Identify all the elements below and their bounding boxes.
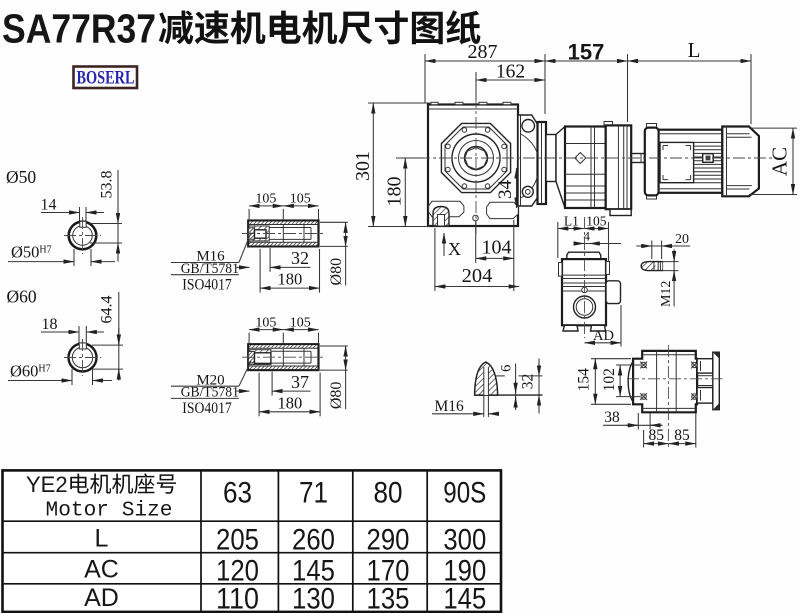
svg-text:L1: L1 (564, 214, 579, 229)
svg-text:ISO4017: ISO4017 (182, 400, 232, 417)
svg-text:SA77R37: SA77R37 (2, 5, 156, 51)
svg-text:Motor Size: Motor Size (46, 500, 173, 523)
svg-text:AD: AD (84, 584, 119, 612)
svg-text:64.4: 64.4 (99, 296, 116, 324)
svg-text:300: 300 (443, 524, 486, 557)
svg-text:180: 180 (384, 177, 406, 207)
svg-text:L: L (688, 38, 701, 62)
svg-text:162: 162 (496, 62, 525, 83)
svg-text:AC: AC (768, 147, 792, 176)
svg-text:32: 32 (520, 374, 537, 390)
svg-text:180: 180 (278, 270, 303, 289)
svg-text:260: 260 (292, 524, 335, 557)
svg-text:102: 102 (601, 368, 618, 391)
svg-text:18: 18 (42, 316, 58, 333)
svg-text:L: L (95, 524, 109, 552)
svg-text:63: 63 (223, 477, 252, 510)
svg-text:38: 38 (604, 409, 620, 426)
svg-text:37: 37 (291, 372, 309, 392)
svg-text:6: 6 (499, 365, 515, 372)
svg-text:205: 205 (216, 524, 259, 557)
svg-text:Ø50: Ø50 (6, 167, 36, 187)
svg-text:X: X (448, 239, 461, 259)
svg-text:71: 71 (299, 477, 328, 510)
svg-text:154: 154 (576, 368, 593, 392)
svg-text:204: 204 (462, 265, 493, 287)
svg-text:104: 104 (482, 237, 512, 259)
svg-text:M12: M12 (659, 281, 674, 307)
svg-text:ISO4017: ISO4017 (182, 276, 232, 293)
svg-text:290: 290 (367, 524, 410, 557)
svg-text:Ø80: Ø80 (328, 258, 345, 286)
svg-text:AC: AC (84, 555, 119, 583)
svg-text:M16: M16 (435, 398, 465, 415)
svg-text:20: 20 (675, 232, 689, 247)
svg-text:110: 110 (216, 583, 259, 613)
svg-text:301: 301 (352, 151, 374, 181)
svg-text:80: 80 (374, 477, 403, 510)
svg-text:157: 157 (568, 40, 605, 65)
svg-text:Ø60: Ø60 (7, 287, 37, 307)
svg-text:AD: AD (593, 328, 614, 344)
svg-text:135: 135 (367, 583, 410, 613)
svg-text:53.8: 53.8 (99, 171, 116, 199)
svg-text:105: 105 (290, 315, 311, 330)
svg-text:14: 14 (41, 197, 57, 214)
svg-text:85: 85 (648, 427, 664, 444)
svg-text:32: 32 (291, 248, 309, 268)
svg-text:105: 105 (586, 214, 607, 229)
svg-text:105: 105 (255, 315, 276, 330)
svg-text:BOSERL: BOSERL (77, 69, 135, 89)
svg-text:YE2: YE2 (26, 472, 68, 497)
svg-text:130: 130 (292, 583, 335, 613)
svg-text:180: 180 (278, 393, 303, 412)
svg-text:85: 85 (674, 427, 690, 444)
svg-text:145: 145 (443, 583, 486, 613)
svg-text:Ø80: Ø80 (328, 382, 345, 410)
svg-text:287: 287 (468, 41, 498, 63)
svg-text:105: 105 (255, 192, 276, 207)
svg-text:105: 105 (290, 192, 311, 207)
svg-text:34: 34 (495, 180, 516, 200)
svg-text:90S: 90S (443, 477, 486, 510)
